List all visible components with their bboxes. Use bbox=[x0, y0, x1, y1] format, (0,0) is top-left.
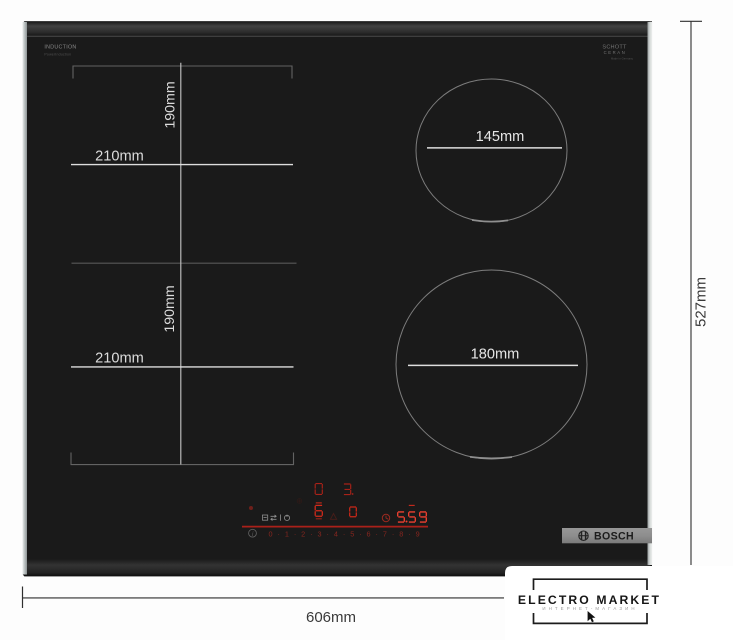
svg-text:210mm: 210mm bbox=[95, 351, 144, 367]
svg-text:606mm: 606mm bbox=[306, 609, 356, 626]
svg-text:ИНТЕРНЕТ-МАГАЗИН: ИНТЕРНЕТ-МАГАЗИН bbox=[542, 606, 637, 611]
svg-text:BOSCH: BOSCH bbox=[594, 531, 634, 543]
svg-text:⊕: ⊕ bbox=[296, 497, 303, 506]
svg-text:190mm: 190mm bbox=[163, 81, 179, 128]
svg-text:210mm: 210mm bbox=[95, 149, 144, 165]
svg-text:145mm: 145mm bbox=[476, 129, 525, 145]
svg-text:CERAN: CERAN bbox=[604, 50, 627, 55]
svg-text:PowerInduction: PowerInduction bbox=[44, 53, 71, 57]
svg-text:180mm: 180mm bbox=[471, 347, 520, 363]
svg-text:527mm: 527mm bbox=[693, 277, 710, 327]
svg-text:INDUCTION: INDUCTION bbox=[44, 45, 76, 51]
svg-text:Made in Germany: Made in Germany bbox=[611, 57, 634, 61]
svg-text:0 · 1 · 2 · 3 · 4 · 5 · 6 · 7: 0 · 1 · 2 · 3 · 4 · 5 · 6 · 7 · 8 · 9 bbox=[269, 529, 422, 538]
svg-text:190mm: 190mm bbox=[162, 285, 178, 332]
